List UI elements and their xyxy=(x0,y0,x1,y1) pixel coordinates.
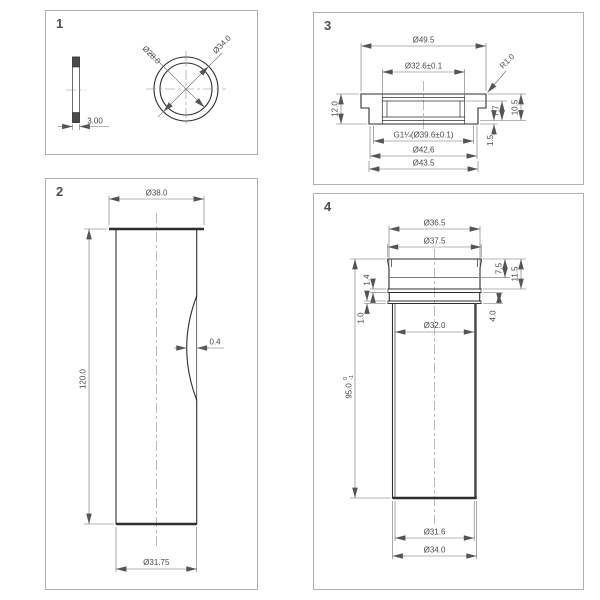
bottom-dia-dim: Ø31.75 xyxy=(116,527,197,572)
depth-outer-dim: 10.5 xyxy=(480,94,526,121)
panel-1-drawing: 3.00 Ø28.0 Ø34.0 xyxy=(46,11,257,154)
p2-length-label: 120.0 xyxy=(79,368,88,389)
panel-1: 1 3.00 Ø28.0 xyxy=(45,10,258,155)
p4-bore-label: Ø32.0 xyxy=(424,321,446,330)
rib-span-dim: 4.0 xyxy=(483,293,503,322)
wall-thickness-dim: 0.4 xyxy=(174,338,224,349)
p4-bottom-od-label: Ø34.0 xyxy=(424,546,446,555)
p3-height-label: 12.0 xyxy=(331,101,340,117)
washer-outer-dia-dim: Ø34.0 xyxy=(158,33,233,117)
p4-rim-h1-label: 7.5 xyxy=(495,262,504,274)
p4-length-tol-lower: -1 xyxy=(349,375,355,380)
p4-top-dia1-label: Ø36.5 xyxy=(424,219,446,228)
tube-outline xyxy=(109,213,204,547)
length-dim: 120.0 xyxy=(79,229,115,524)
p3-thread-label: G1¼(Ø39.6±0.1) xyxy=(394,131,454,140)
panel-4-drawing: Ø36.5 Ø37.5 95.0 0 -1 1.4 xyxy=(314,194,583,589)
radius-callout: R1.0 xyxy=(488,52,517,93)
panel-4: 4 xyxy=(313,193,584,590)
panel-2: 2 Ø38.0 120.0 xyxy=(45,178,258,590)
p2-top-dia-label: Ø38.0 xyxy=(146,189,168,198)
p4-rib1-label: 1.4 xyxy=(363,274,372,286)
drawing-sheet: { "sheet": { "background": "#ffffff", "p… xyxy=(0,0,600,600)
p2-bottom-dia-label: Ø31.75 xyxy=(143,558,170,567)
panel-2-drawing: Ø38.0 120.0 0.4 Ø31.75 xyxy=(46,179,257,589)
p3-outer-dia-label: Ø49.5 xyxy=(413,36,435,45)
p4-rib2-label: 1.0 xyxy=(357,312,366,324)
p3-d43-label: Ø43.5 xyxy=(413,159,435,168)
rib1-dim: 1.4 xyxy=(363,274,387,303)
panel-3: 3 Ø49.5 xyxy=(313,12,584,185)
panel-3-drawing: Ø49.5 Ø32.6±0.1 R1.0 12.0 7.7 10.5 xyxy=(314,13,583,184)
bore-dia-dim: Ø32.6±0.1 xyxy=(382,62,464,98)
p4-top-dia2-label: Ø37.5 xyxy=(424,237,446,246)
p3-radius-label: R1.0 xyxy=(498,52,517,71)
nut-section-view xyxy=(361,81,486,132)
p4-rib-span-label: 4.0 xyxy=(489,310,498,322)
p2-wall-label: 0.4 xyxy=(209,338,221,347)
p3-bore-dia-label: Ø32.6±0.1 xyxy=(405,62,443,71)
p4-bottom-id-label: Ø31.6 xyxy=(424,528,446,537)
p4-rim-h2-label: 11.5 xyxy=(511,266,520,282)
washer-inner-dia-dim: Ø28.0 xyxy=(141,44,205,107)
p1-thickness-label: 3.00 xyxy=(87,117,103,126)
p3-d42-label: Ø42,6 xyxy=(413,146,435,155)
rim-h2-dim: 11.5 xyxy=(483,259,526,289)
d43-dim: Ø43.5 xyxy=(369,159,478,173)
p4-length-label: 95.0 xyxy=(345,383,354,399)
p3-depth-outer-label: 10.5 xyxy=(511,99,520,115)
p3-lip-label: 1.5 xyxy=(486,134,495,146)
washer-side-view xyxy=(66,57,86,123)
rib2-dim: 1.0 xyxy=(357,291,387,324)
p1-inner-dia-label: Ø28.0 xyxy=(141,44,163,66)
washer-thickness-dim: 3.00 xyxy=(58,117,109,131)
tube-outline xyxy=(388,249,481,524)
p3-depth-inner-label: 7.7 xyxy=(492,105,501,117)
p1-outer-dia-label: Ø34.0 xyxy=(211,33,233,55)
